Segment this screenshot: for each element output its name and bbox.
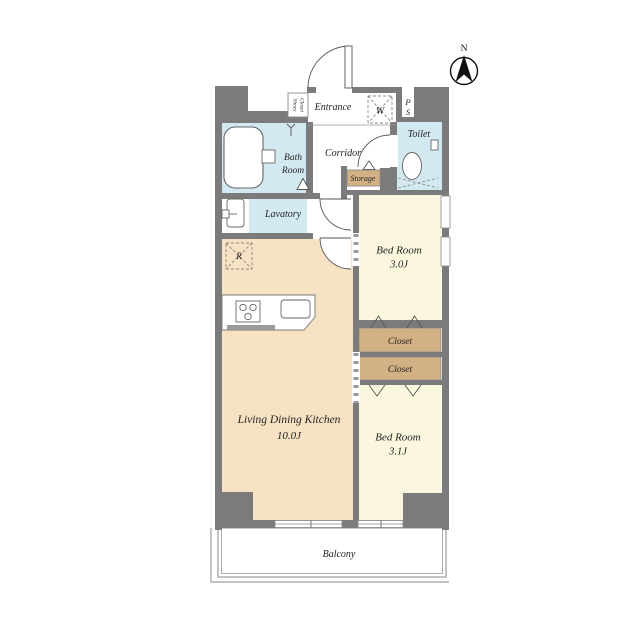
- bedroom1-size: 3.0J: [389, 260, 409, 271]
- entrance-label: Entrance: [314, 102, 352, 113]
- pipe-space-label-line2: S: [406, 107, 411, 117]
- kitchen-counter-edge: [227, 325, 275, 330]
- bathtub-counter: [262, 150, 275, 163]
- bedroom1-window-upper: [441, 196, 450, 228]
- bedroom1-window-lower: [441, 237, 450, 266]
- wall-top-b: [352, 87, 402, 93]
- wall-bath-top: [222, 117, 308, 123]
- washer-label: W: [376, 106, 386, 117]
- ldk-balcony-window: [275, 521, 342, 528]
- storage-door-marker: [363, 161, 375, 170]
- wall-toilet-top: [396, 117, 449, 122]
- wall-left: [215, 86, 222, 530]
- refrigerator-label: R: [235, 251, 242, 261]
- wall-closet2-bedroom2: [359, 380, 442, 385]
- kitchen-counter: [222, 295, 315, 330]
- pipe-space-label-line1: P: [404, 97, 410, 107]
- storage-label: Storage: [351, 174, 376, 183]
- bath-room-label-line2: Room: [281, 166, 304, 176]
- closet2-label: Closet: [388, 365, 413, 375]
- wall-bedroom1-closet: [353, 320, 442, 328]
- entrance-door-leaf: [345, 46, 352, 88]
- ldk-floor: [222, 239, 353, 520]
- wall-closet1-closet2: [359, 352, 442, 357]
- bedroom2-size: 3.1J: [388, 447, 408, 458]
- wall-topleft-block: [215, 86, 248, 118]
- wall-right-between-windows: [442, 228, 449, 237]
- compass: N: [451, 44, 478, 85]
- bedroom2-balcony-window: [358, 521, 403, 528]
- wall-bath-bottom: [222, 193, 320, 199]
- floor-plan: N Entrance Shoes Closet Corridor Bath Ro…: [0, 0, 640, 640]
- closet1-label: Closet: [388, 337, 413, 347]
- entrance-door-arc: [308, 46, 350, 88]
- bedroom2-label: Bed Room: [375, 432, 421, 444]
- floor-plan-page: N Entrance Shoes Closet Corridor Bath Ro…: [0, 0, 640, 640]
- bedroom1-floor: [359, 195, 441, 320]
- toilet-paper-holder: [431, 140, 438, 150]
- entrance-door: [308, 46, 352, 88]
- hall-door-arc: [320, 199, 351, 230]
- wall-notch: [248, 111, 288, 118]
- washbasin-faucet: [222, 210, 229, 218]
- balcony-label: Balcony: [323, 549, 356, 560]
- compass-north-label: N: [461, 44, 468, 54]
- wall-bottomright-block: [403, 493, 449, 528]
- wall-right-upper: [442, 117, 449, 196]
- wall-bedroom1-top: [347, 190, 449, 195]
- lavatory-label: Lavatory: [264, 209, 302, 220]
- wall-bottomleft-block: [215, 492, 253, 528]
- ldk-label: Living Dining Kitchen: [237, 414, 341, 426]
- wall-lavatory-bottom: [222, 233, 313, 239]
- shoes-closet-label-line1: Shoes: [292, 99, 298, 112]
- toilet-label: Toilet: [408, 129, 431, 140]
- toilet-door-opening: [389, 135, 398, 167]
- bedroom1-label: Bed Room: [376, 245, 422, 257]
- wall-storage-left-stub: [341, 166, 347, 199]
- toilet-door-arc: [358, 135, 390, 167]
- bedroom1-sliding-door-gap: [352, 233, 360, 266]
- bath-room-label-line1: Bath: [284, 153, 302, 163]
- kitchen-sink: [281, 300, 310, 318]
- wall-right-lower: [442, 266, 449, 530]
- shoes-closet-label-line2: Closet: [299, 98, 305, 113]
- stove: [236, 301, 260, 322]
- hall-door: [320, 199, 351, 230]
- ldk-size: 10.0J: [277, 430, 302, 442]
- corridor-label: Corridor: [325, 148, 361, 159]
- wall-topright-block: [414, 87, 449, 117]
